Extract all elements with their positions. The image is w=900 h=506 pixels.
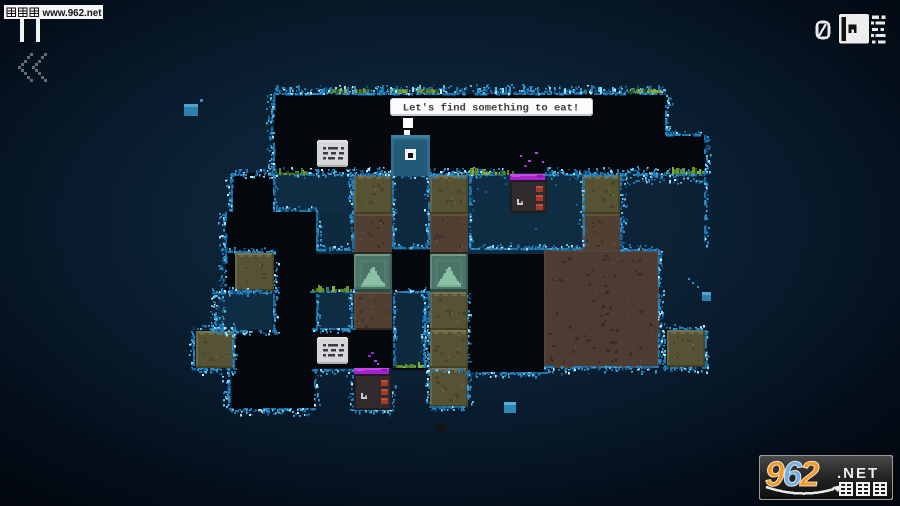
svg-text:.NET: .NET <box>837 465 879 482</box>
svg-text:Let's find something to eat!: Let's find something to eat! <box>403 103 579 115</box>
svg-text:www.962.net: www.962.net <box>42 8 103 19</box>
